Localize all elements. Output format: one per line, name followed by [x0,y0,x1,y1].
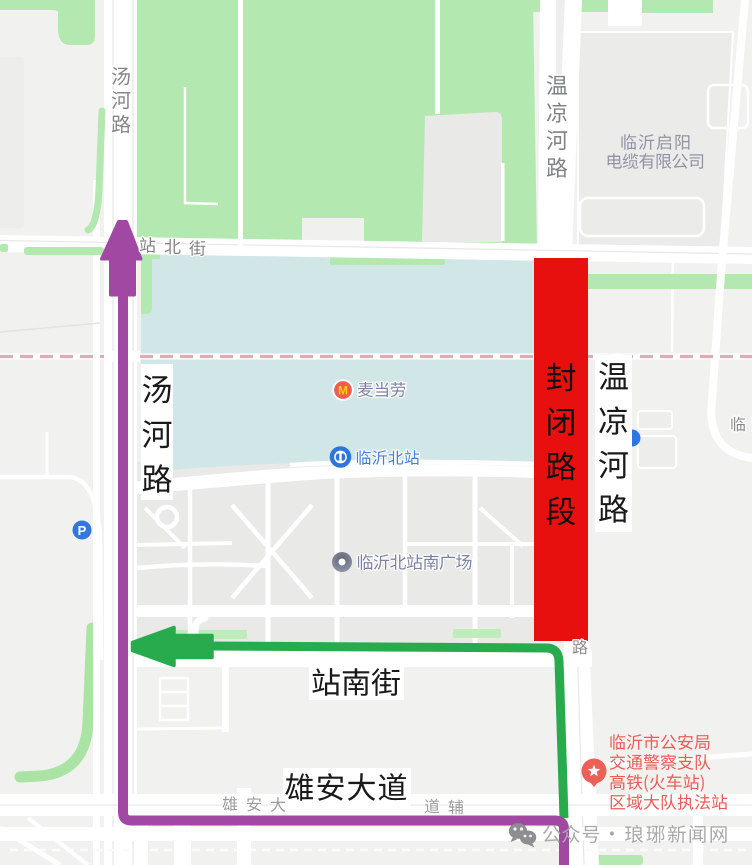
svg-text:M: M [338,384,348,398]
svg-text:P: P [78,523,87,538]
